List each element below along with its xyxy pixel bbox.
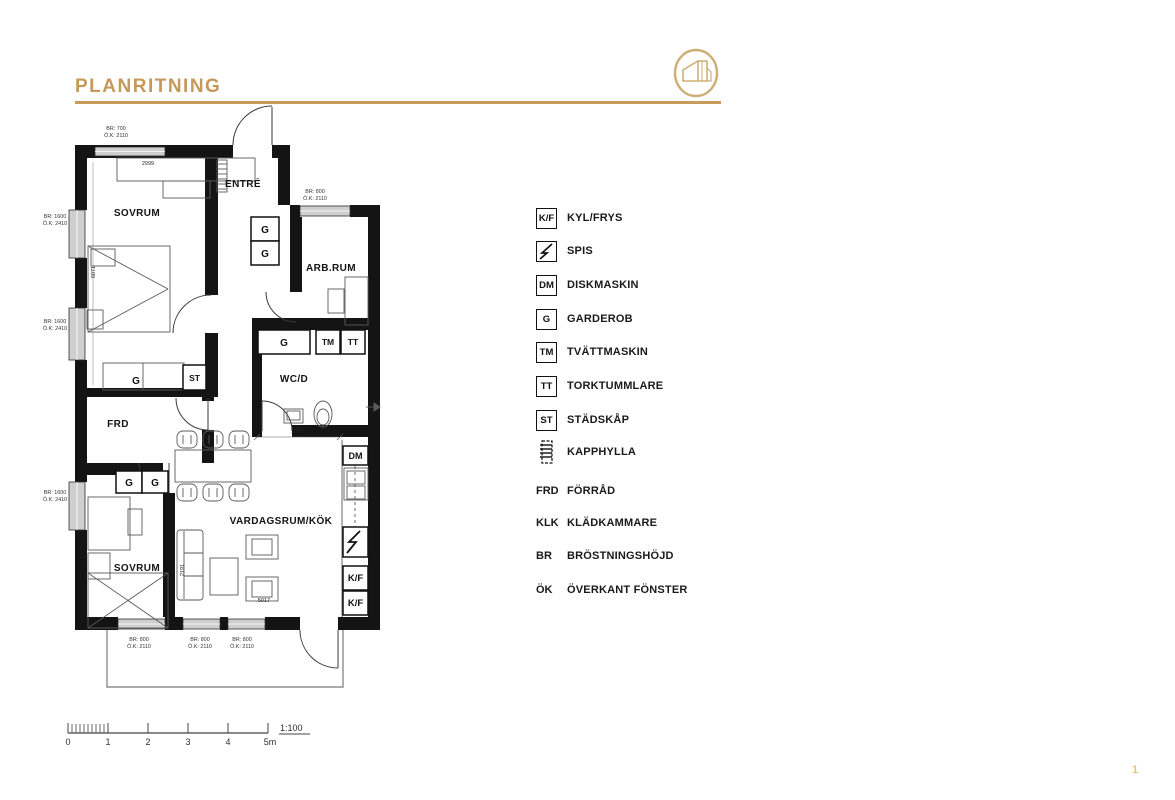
room-labels: SOVRUM ENTRÉ ARB.RUM WC/D FRD VARDAGSRUM…: [107, 177, 356, 574]
dim-6071: 6071: [91, 266, 97, 278]
freezer-box-label: K/F: [348, 598, 364, 609]
dim-1899: 1899: [291, 429, 303, 435]
closet-box-label: G: [280, 338, 288, 349]
cleaning-closet-label: ST: [189, 373, 201, 383]
legend-row-overkant: ÖK ÖVERKANT FÖNSTER: [536, 578, 559, 602]
legend-row-torktumlare: TT TORKTUMMLARE: [536, 374, 557, 398]
room-label-sovrum1: SOVRUM: [114, 208, 160, 219]
legend-row-stadskap: ST STÄDSKÅP: [536, 408, 557, 432]
svg-text:BR: 800: BR: 800: [190, 637, 209, 643]
dishwasher-box-label: DM: [349, 451, 363, 461]
legend-row-kladkammare: KLK KLÄDKAMMARE: [536, 511, 559, 535]
svg-text:Ö.K: 2110: Ö.K: 2110: [127, 643, 151, 650]
walkin-closet-abbr: KLK: [536, 517, 559, 529]
scale-tick-2: 2: [145, 737, 150, 747]
room-label-sovrum2: SOVRUM: [114, 563, 160, 574]
cleaning-closet-icon: ST: [536, 410, 557, 431]
dryer-box-label: TT: [348, 337, 359, 347]
scale-tick-4: 4: [225, 737, 230, 747]
fridge-box-label: K/F: [348, 573, 364, 584]
floorplan-page: PLANRITNING: [0, 0, 1175, 800]
wardrobe-icon: G: [536, 309, 557, 330]
room-label-frd: FRD: [107, 419, 129, 430]
fridge-freezer-icon: K/F: [536, 208, 557, 229]
legend-row-tvattmaskin: TM TVÄTTMASKIN: [536, 340, 557, 364]
room-label-wcd: WC/D: [280, 374, 308, 385]
floorplan-drawing: G G G TM TT ST G G DM K/F K/F: [0, 0, 1175, 800]
svg-text:BR: 1600: BR: 1600: [44, 319, 66, 325]
closet-box-label: G: [261, 249, 269, 260]
svg-text:BR: 1600: BR: 1600: [44, 214, 66, 220]
window-top-abbr: ÖK: [536, 584, 559, 596]
storage-abbr: FRD: [536, 485, 559, 497]
legend-row-spis: SPIS: [536, 239, 557, 263]
dishwasher-icon: DM: [536, 275, 557, 296]
svg-text:BR: 800: BR: 800: [129, 637, 148, 643]
svg-text:Ö.K: 2410: Ö.K: 2410: [43, 220, 67, 227]
svg-text:Ö.K: 2110: Ö.K: 2110: [104, 132, 128, 139]
svg-text:Ö.K: 2410: Ö.K: 2410: [43, 496, 67, 503]
legend-row-forrad: FRD FÖRRÅD: [536, 479, 559, 503]
svg-text:Ö.K: 2110: Ö.K: 2110: [303, 195, 327, 202]
plan-boxes: G G G TM TT ST G G DM K/F K/F: [116, 217, 368, 615]
svg-text:BR: 700: BR: 700: [106, 126, 125, 132]
svg-text:BR: 800: BR: 800: [232, 637, 251, 643]
room-label-entre: ENTRÉ: [225, 177, 261, 190]
dim-2999: 2999: [142, 161, 154, 167]
scale-ratio: 1:100: [280, 723, 303, 733]
scale-tick-5m: 5m: [264, 737, 277, 747]
legend-row-kylfrys: K/F KYL/FRYS: [536, 206, 557, 230]
dim-2191: 2191: [180, 564, 186, 576]
svg-text:BR: 1600: BR: 1600: [44, 490, 66, 496]
room-label-vardagsrum: VARDAGSRUM/KÖK: [230, 514, 333, 527]
sill-height-abbr: BR: [536, 550, 559, 562]
legend-row-brostningshojd: BR BRÖSTNINGSHÖJD: [536, 544, 559, 568]
legend-row-kapphylla: KAPPHYLLA: [536, 440, 557, 464]
legend-row-diskmaskin: DM DISKMASKIN: [536, 273, 557, 297]
scale-bar: 0 1 2 3 4 5m 1:100: [65, 723, 310, 747]
closet-label: G: [132, 376, 140, 387]
legend-row-garderob: G GARDEROB: [536, 307, 557, 331]
closet-box-label: G: [125, 478, 133, 489]
scale-tick-0: 0: [65, 737, 70, 747]
page-marker: 1: [1132, 764, 1138, 776]
closet-box-label: G: [151, 478, 159, 489]
washing-machine-icon: TM: [536, 342, 557, 363]
stove-symbol: [343, 527, 368, 557]
coat-rack-icon: [536, 440, 557, 464]
tumble-dryer-icon: TT: [536, 376, 557, 397]
stove-lightning-icon: [536, 241, 557, 262]
scale-tick-1: 1: [105, 737, 110, 747]
svg-text:Ö.K: 2110: Ö.K: 2110: [230, 643, 254, 650]
closet-box-label: G: [261, 225, 269, 236]
svg-text:Ö.K: 2410: Ö.K: 2410: [43, 325, 67, 332]
svg-text:Ö.K: 2110: Ö.K: 2110: [188, 643, 212, 650]
dim-5017: 5017: [258, 598, 270, 604]
washer-box-label: TM: [322, 337, 334, 347]
svg-text:BR: 800: BR: 800: [305, 189, 324, 195]
room-label-arbrum: ARB.RUM: [306, 263, 356, 274]
scale-tick-3: 3: [185, 737, 190, 747]
